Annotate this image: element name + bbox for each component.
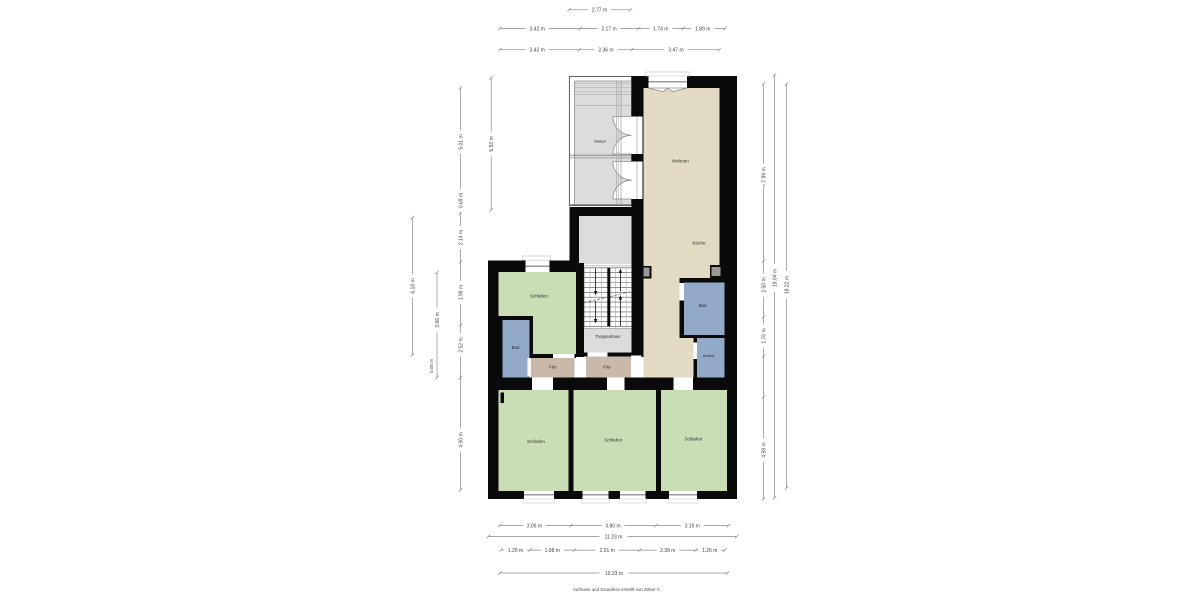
svg-text:Schlafen: Schlafen [684, 437, 702, 442]
svg-text:1.99 m: 1.99 m [458, 285, 464, 300]
svg-text:1.26 m: 1.26 m [702, 548, 717, 554]
svg-text:3.80 m: 3.80 m [605, 523, 620, 529]
svg-text:18.22 m: 18.22 m [784, 276, 790, 294]
svg-text:2.17 m: 2.17 m [601, 26, 616, 32]
svg-text:Wohnen: Wohnen [672, 158, 689, 163]
svg-text:2.52 m: 2.52 m [458, 337, 464, 352]
svg-text:1.98 m: 1.98 m [545, 548, 560, 554]
svg-text:1.76 m: 1.76 m [761, 328, 767, 343]
svg-text:Balkon: Balkon [594, 138, 606, 143]
svg-text:Aufmass und Grundriss erstellt: Aufmass und Grundriss erstellt von Zöker… [573, 586, 661, 592]
svg-text:3.47 m: 3.47 m [668, 48, 683, 54]
svg-text:Schlafen: Schlafen [604, 437, 622, 442]
svg-text:3.16 m: 3.16 m [685, 523, 700, 529]
svg-text:19.04 m: 19.04 m [772, 269, 778, 287]
svg-text:2.14 m: 2.14 m [458, 230, 464, 245]
svg-text:4.59 m: 4.59 m [761, 442, 767, 457]
svg-text:Treppenhaus: Treppenhaus [595, 334, 620, 339]
svg-text:4.00 m: 4.00 m [458, 432, 464, 447]
svg-text:Abstell: Abstell [703, 354, 715, 358]
svg-text:6.18 m: 6.18 m [410, 278, 416, 293]
svg-text:Bad: Bad [512, 345, 520, 350]
svg-text:2.36 m: 2.36 m [598, 48, 613, 54]
svg-text:Flur: Flur [549, 364, 557, 369]
svg-text:Küche: Küche [692, 240, 705, 245]
svg-text:10.23 m: 10.23 m [605, 571, 623, 577]
svg-text:Bad: Bad [699, 303, 707, 308]
svg-text:5.01 m: 5.01 m [458, 134, 464, 149]
svg-text:2.50 m: 2.50 m [761, 277, 767, 292]
svg-text:3.06 m: 3.06 m [527, 523, 542, 529]
svg-text:3.42 m: 3.42 m [530, 26, 545, 32]
svg-text:0.05 m: 0.05 m [429, 359, 434, 373]
svg-text:Schlafen: Schlafen [530, 294, 548, 299]
svg-text:2.01 m: 2.01 m [600, 548, 615, 554]
svg-text:3.66 m: 3.66 m [435, 312, 441, 327]
svg-text:2.77 m: 2.77 m [592, 8, 607, 14]
svg-text:2.38 m: 2.38 m [660, 548, 675, 554]
svg-text:1.74 m: 1.74 m [653, 26, 668, 32]
svg-text:≈ 7.99 m: ≈ 7.99 m [761, 167, 767, 186]
svg-text:1.20 m: 1.20 m [508, 548, 523, 554]
svg-text:1.89 m: 1.89 m [695, 26, 710, 32]
svg-text:Flur: Flur [603, 364, 611, 369]
svg-text:Schlafen: Schlafen [527, 439, 545, 444]
svg-text:0.69 m: 0.69 m [458, 193, 464, 208]
svg-text:3.42 m: 3.42 m [530, 48, 545, 54]
svg-text:11.23 m: 11.23 m [605, 534, 623, 540]
svg-text:5.92 m: 5.92 m [489, 136, 495, 151]
